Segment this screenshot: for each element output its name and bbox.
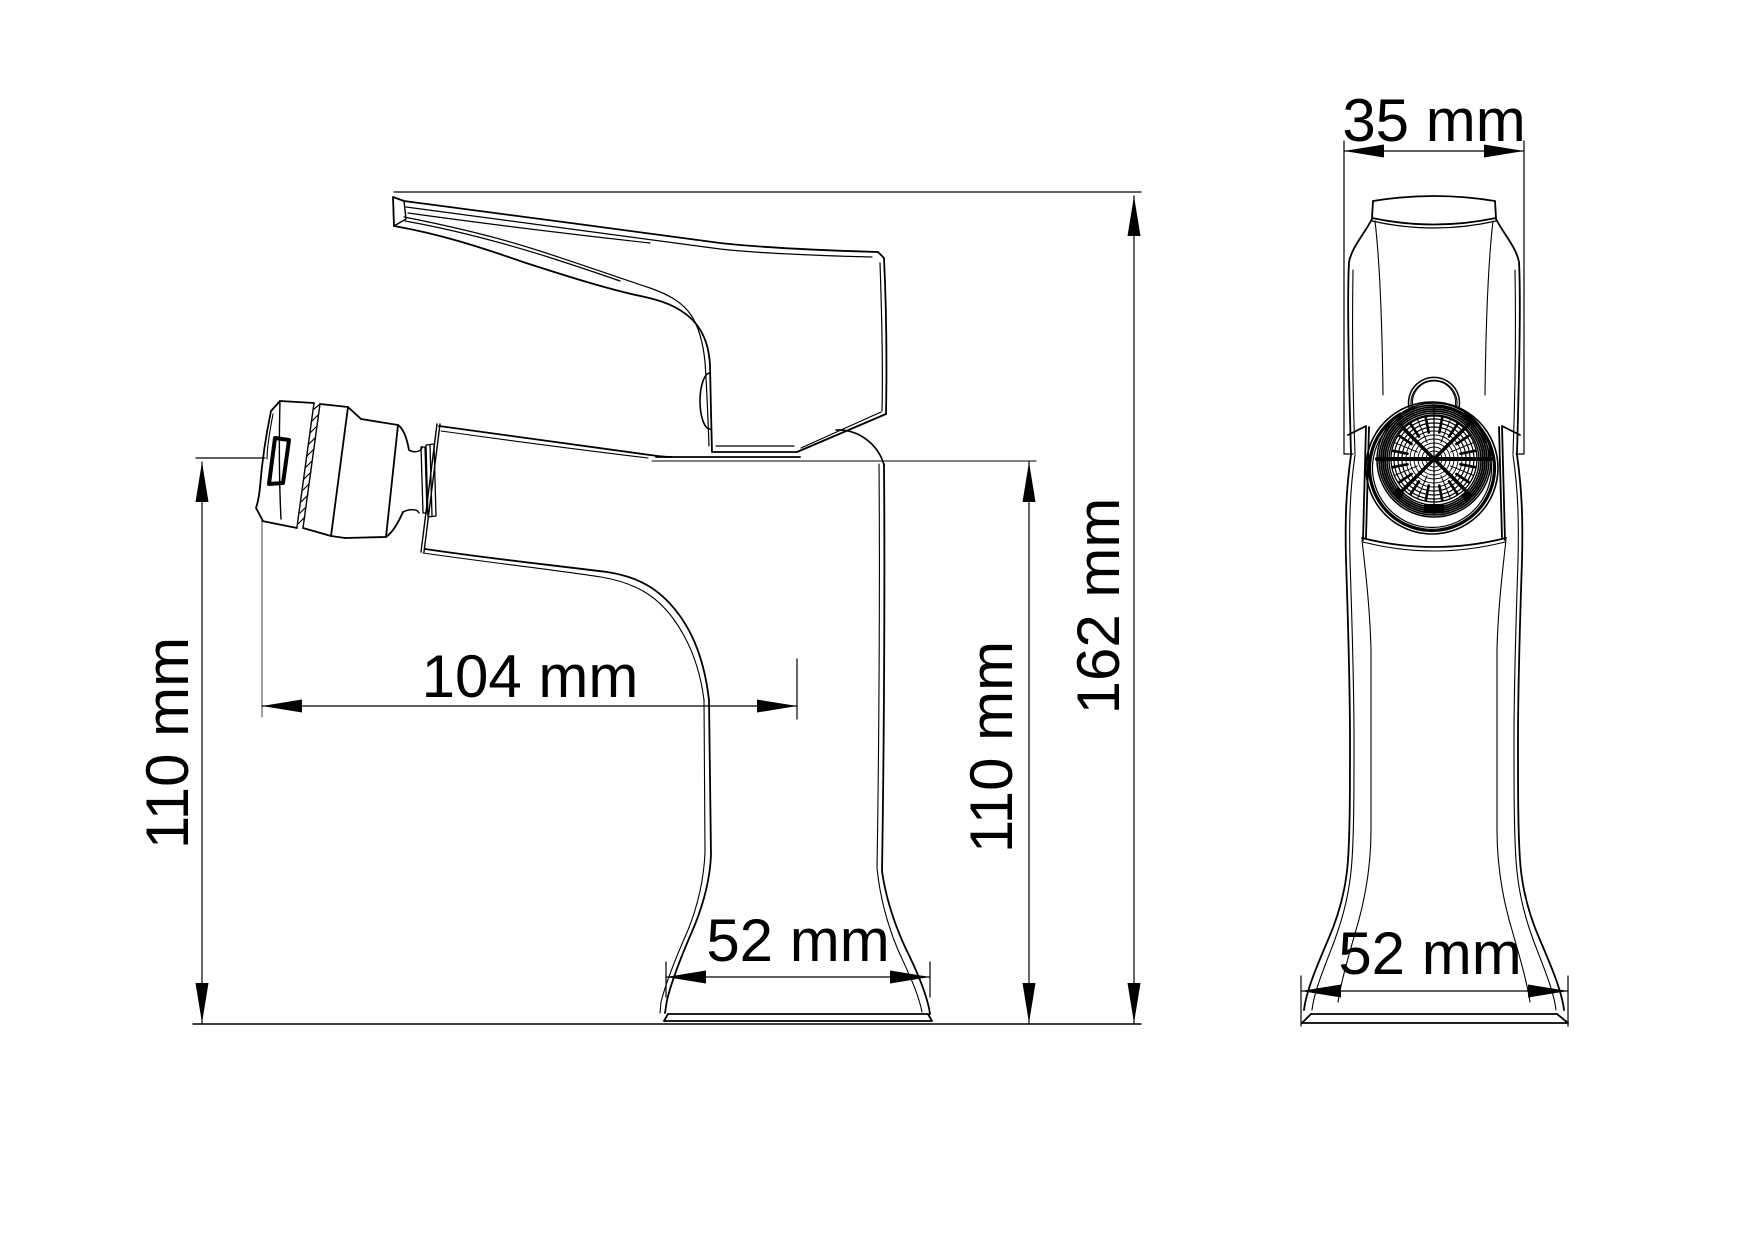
svg-text:110 mm: 110 mm: [958, 641, 1025, 853]
svg-text:35 mm: 35 mm: [1342, 87, 1525, 154]
svg-text:52 mm: 52 mm: [706, 907, 889, 974]
svg-text:162 mm: 162 mm: [1065, 498, 1132, 715]
svg-text:52 mm: 52 mm: [1338, 920, 1521, 987]
svg-text:104 mm: 104 mm: [422, 643, 639, 710]
svg-text:110 mm: 110 mm: [134, 637, 201, 849]
